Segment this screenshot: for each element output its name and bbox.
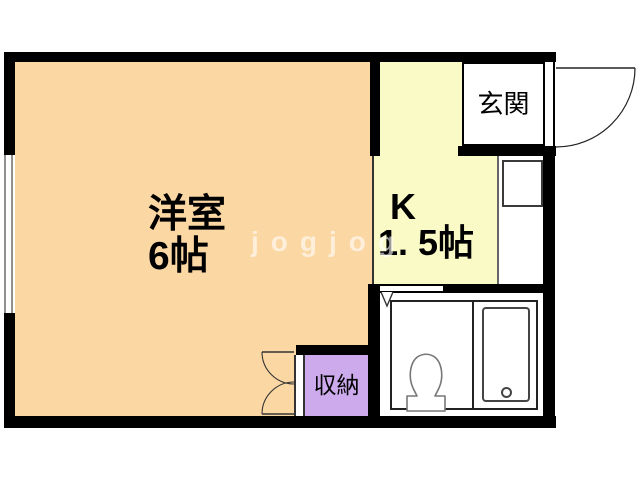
wall-entrance-bottom: [458, 146, 556, 156]
window-left: [4, 155, 13, 313]
wall-left-lower: [4, 313, 15, 428]
utility-box: [502, 160, 543, 207]
wall-left-upper: [4, 52, 15, 155]
western-room-size: 6帖: [148, 237, 209, 276]
closet-label: 収納: [314, 374, 360, 397]
line-entrance-jamb: [553, 62, 555, 146]
room-entrance: 玄関: [462, 62, 545, 146]
floor-plan-canvas: 玄関 洋室 6帖 K: [0, 0, 640, 480]
wall-bottom: [4, 416, 556, 428]
wall-top: [4, 52, 556, 62]
wall-bathroom-left: [368, 284, 380, 428]
bath-unit-divider: [472, 300, 474, 410]
bathtub-drain: [501, 387, 512, 398]
wall-closet-top: [296, 345, 368, 355]
entrance-label: 玄関: [477, 91, 529, 117]
closet-door-frame: [294, 355, 305, 416]
watermark: jogjog: [251, 226, 407, 258]
bathroom-doorway: [380, 284, 443, 293]
wall-partition-kitchen: [370, 62, 380, 156]
line-partition-kitchen: [372, 156, 374, 284]
kitchen-label: K: [390, 189, 416, 225]
wall-bathroom-top: [443, 284, 555, 293]
closet-label-box: 収納: [305, 355, 368, 416]
western-room-name: 洋室: [148, 195, 226, 234]
entrance-door-swing-icon: [556, 68, 635, 147]
